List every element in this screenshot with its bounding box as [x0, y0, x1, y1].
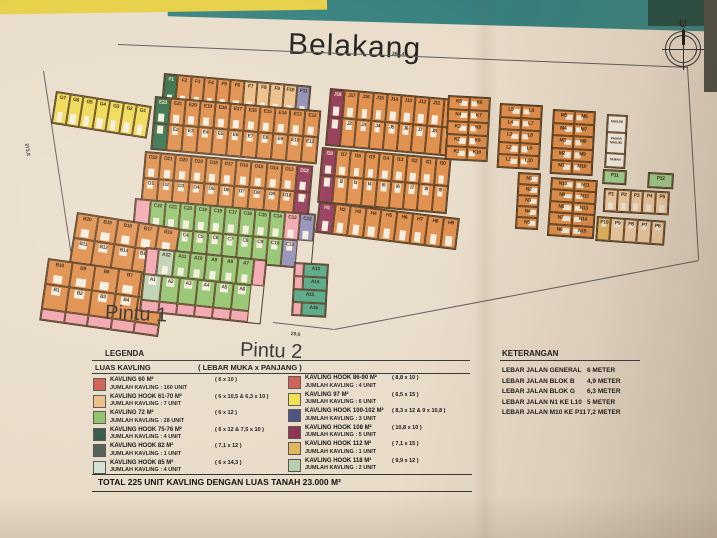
plot-e11: E11 — [301, 136, 318, 163]
total-units-text: TOTAL 225 UNIT KAVLING DENGAN LUAS TANAH… — [98, 477, 341, 487]
legend-swatch — [93, 461, 106, 474]
legend-item: KAVLING HOOK 108 M²JUMLAH KAVLING : 5 UN… — [288, 425, 478, 441]
plot-l5: L5 — [500, 104, 521, 118]
plot-k4: K4 — [448, 109, 469, 123]
legend-swatch — [93, 444, 106, 457]
keterangan-label: LEBAR JALAN BLOK G — [502, 388, 575, 395]
legend-item: KAVLING HOOK 82 M²JUMLAH KAVLING : 1 UNI… — [93, 443, 283, 459]
legend-item-count: JUMLAH KAVLING : 1 UNIT — [110, 451, 181, 457]
plot-l3: L3 — [499, 129, 520, 143]
plot-stub — [194, 305, 213, 318]
block-g: G7G6G5G4G3G2G1 — [51, 91, 151, 139]
legend-item-dimensions: ( 10,8 x 10 ) — [392, 425, 422, 431]
plot-k8: K8 — [467, 122, 488, 136]
legend-item-count: JUMLAH KAVLING : 160 UNIT — [110, 385, 187, 391]
facility-strip: MASJIDPASAR MASJIDTAMAN — [604, 114, 628, 169]
legend-swatch — [288, 409, 301, 422]
block-j: J18J17J16J15J14J13J12J11J10J1J2J3J4J5J6J… — [325, 88, 459, 157]
total-rule-bottom — [92, 491, 472, 492]
plot-p1: P1 — [604, 189, 618, 212]
plot-e12: E12 — [303, 110, 320, 137]
legend-item-count: JUMLAH KAVLING : 5 UNIT — [305, 432, 376, 438]
keterangan-value: 5 METER — [587, 399, 615, 406]
keterangan-value: 6,3 METER — [587, 388, 621, 395]
plot-m3: M3 — [552, 135, 573, 149]
plot-m8: M8 — [572, 136, 593, 150]
block-m: M5M6M4M7M3M8M2M9M1M10 — [550, 109, 596, 176]
plot-stub — [252, 259, 267, 286]
plot-p3: P3 — [629, 190, 643, 213]
block-p-lower: P10P9P8P7P6 — [595, 216, 666, 246]
legend-item-name: KAVLING HOOK 61-70 M² — [110, 394, 182, 400]
plot-p11: P11 — [603, 170, 626, 184]
block-p-upper: P1P2P3P4P5 — [603, 188, 670, 215]
legend-item-count: JUMLAH KAVLING : 28 UNIT — [110, 418, 184, 424]
legend-size-header: ( LEBAR MUKA x PANJANG ) — [198, 363, 302, 372]
legend-swatch — [93, 411, 106, 424]
keterangan-value: 4,9 METER — [587, 378, 621, 385]
compass-icon — [665, 31, 701, 67]
plot-a14: A14 — [303, 277, 328, 291]
keterangan-row: LEBAR JALAN BLOK G6,3 METER — [502, 388, 677, 398]
legend-item: KAVLING HOOK 85 M²JUMLAH KAVLING : 4 UNI… — [93, 460, 283, 476]
legend-swatch — [288, 459, 301, 472]
keterangan-label: LEBAR JALAN GENERAL — [502, 367, 581, 374]
keterangan-label: LEBAR JALAN M10 KE P11 — [502, 409, 586, 416]
plot-m2: M2 — [551, 148, 572, 162]
plot-p6: P6 — [650, 221, 665, 245]
plot-p11: P11 — [602, 169, 627, 185]
plot-l2: L2 — [498, 142, 519, 156]
legend-item-count: JUMLAH KAVLING : 4 UNIT — [110, 434, 181, 440]
plot-n5: N5 — [516, 217, 538, 229]
block-n-column: N1N2N3N4N5 — [515, 172, 541, 230]
legend-item-count: JUMLAH KAVLING : 1 UNIT — [305, 449, 376, 455]
legend-item-name: KAVLING 60 M² — [110, 377, 154, 383]
plot-h9: H9 — [440, 217, 459, 249]
siteplan-photo: Belakang U 360,4 273,8 76,3 29,6 G7G6G5G… — [0, 0, 717, 538]
legend-item-name: KAVLING HOOK 118 M² — [305, 458, 371, 464]
legend-title: LEGENDA — [105, 349, 144, 358]
legend-swatch — [93, 395, 106, 408]
legend-item: KAVLING HOOK 118 M²JUMLAH KAVLING : 2 UN… — [288, 458, 478, 474]
legend-item-name: KAVLING 97 M² — [305, 392, 349, 398]
legend-item-dimensions: ( 6 x 14,3 ) — [215, 460, 242, 466]
plot-l10: L10 — [518, 155, 539, 169]
plot-a13: A13 — [303, 264, 328, 278]
legend-item-dimensions: ( 6 x 12 & 7,5 x 10 ) — [215, 427, 264, 433]
keterangan-row: LEBAR JALAN GENERAL6 METER — [502, 367, 677, 377]
legend-item-name: KAVLING HOOK 85 M² — [110, 460, 173, 466]
block-l: L5L6L4L7L3L8L2L9L1L10 — [497, 103, 543, 170]
plot-k7: K7 — [468, 110, 489, 124]
keterangan-row: LEBAR JALAN N1 KE L105 METER — [502, 399, 677, 409]
plot-p5: P5 — [655, 192, 669, 215]
plot-k5: K5 — [448, 96, 469, 110]
legend-item: KAVLING 60 M²JUMLAH KAVLING : 160 UNIT( … — [93, 377, 283, 393]
plot-m1: M1 — [551, 160, 572, 174]
block-a-column: A13A14A15A16 — [291, 262, 329, 318]
plot-l8: L8 — [519, 130, 540, 144]
legend-rule-top — [92, 360, 470, 361]
legend-item-count: JUMLAH KAVLING : 3 UNIT — [305, 416, 376, 422]
legend-item-name: KAVLING HOOK 112 M² — [305, 441, 371, 447]
plot-i9: I9 — [431, 185, 447, 213]
legend-item-count: JUMLAH KAVLING : 2 UNIT — [305, 465, 376, 471]
plot-l7: L7 — [520, 118, 541, 132]
plot-l9: L9 — [519, 143, 540, 157]
plot-p12: P12 — [648, 173, 673, 188]
legend-item-dimensions: ( 7,1 x 15 ) — [392, 441, 419, 447]
legend-item-dimensions: ( 9,9 x 12 ) — [392, 458, 419, 464]
keterangan-rule — [500, 360, 640, 361]
plot-stub — [176, 304, 195, 317]
legend-item-name: KAVLING HOOK 75-76 M² — [110, 427, 182, 433]
keterangan-label: LEBAR JALAN BLOK B — [502, 378, 575, 385]
legend-item: KAVLING HOOK 61-70 M²JUMLAH KAVLING : 7 … — [93, 394, 283, 410]
legend-item-dimensions: ( 8,8 x 10 ) — [392, 375, 419, 381]
plot-l6: L6 — [521, 105, 542, 119]
plot-c12: C12 — [298, 213, 315, 241]
legend-item-count: JUMLAH KAVLING : 7 UNIT — [110, 401, 181, 407]
keterangan-title: KETERANGAN — [502, 349, 558, 358]
legend-item-name: KAVLING HOOK 100-102 M² — [305, 408, 384, 414]
legend-item: KAVLING 72 M²JUMLAH KAVLING : 28 UNIT( 6… — [93, 410, 283, 426]
legend-item: KAVLING HOOK 112 M²JUMLAH KAVLING : 1 UN… — [288, 441, 478, 457]
plot-i10: I10 — [434, 158, 450, 186]
plot-m5: M5 — [553, 110, 574, 124]
legend-item-name: KAVLING HOOK 82 M² — [110, 443, 173, 449]
legend-item-count: JUMLAH KAVLING : 4 UNIT — [305, 383, 376, 389]
legend-swatch — [288, 393, 301, 406]
plot-n6: N6 — [548, 224, 571, 237]
plot-m10: M10 — [571, 161, 592, 175]
legend-swatch — [93, 428, 106, 441]
plot-m6: M6 — [574, 111, 595, 125]
plot-k6: K6 — [469, 97, 490, 111]
legend-item-name: KAVLING 72 M² — [110, 410, 154, 416]
legend-item-name: KAVLING HOOK 86-90 M² — [305, 375, 377, 381]
legend-item-count: JUMLAH KAVLING : 6 UNIT — [305, 399, 376, 405]
keterangan-value: 7,2 METER — [587, 409, 621, 416]
plot-a6: A6 — [231, 283, 252, 311]
plot-pasar masjid: PASAR MASJID — [606, 132, 626, 154]
block-n: N10N11N9N12N8N13N7N14N6N15 — [547, 177, 598, 239]
plot-m4: M4 — [553, 123, 574, 137]
legend-item-dimensions: ( 6 x 10 ) — [215, 377, 237, 383]
plot-p12: P12 — [647, 172, 674, 189]
compass: U — [662, 18, 704, 67]
legend-item: KAVLING 97 M²JUMLAH KAVLING : 6 UNIT( 6,… — [288, 392, 478, 408]
legend-item-dimensions: ( 7,1 x 12 ) — [215, 443, 242, 449]
plot-l4: L4 — [500, 117, 521, 131]
gate-label-pintu1: Pintu 1 — [104, 301, 167, 327]
keterangan-row: LEBAR JALAN M10 KE P117,2 METER — [502, 409, 677, 419]
plot-masjid: MASJID — [607, 115, 627, 133]
legend-swatch — [93, 378, 106, 391]
legend-item-count: JUMLAH KAVLING : 4 UNIT — [110, 467, 181, 473]
plot-l1: L1 — [498, 154, 519, 168]
legend-item: KAVLING HOOK 75-76 M²JUMLAH KAVLING : 4 … — [93, 427, 283, 443]
compass-needle — [682, 30, 685, 45]
keterangan-label: LEBAR JALAN N1 KE L10 — [502, 399, 582, 406]
legend-column-header: LUAS KAVLING — [95, 363, 151, 372]
block-k: K5K6K4K7K3K8K2K9K1K10 — [445, 95, 491, 162]
legend-item-name: KAVLING HOOK 108 M² — [305, 425, 372, 431]
keterangan-value: 6 METER — [587, 367, 615, 374]
plot-p2: P2 — [617, 190, 631, 213]
plot-k1: K1 — [446, 146, 467, 160]
plot-k2: K2 — [446, 134, 467, 148]
plot-p4: P4 — [642, 191, 656, 214]
plot-k3: K3 — [447, 121, 468, 135]
plot-stub — [230, 309, 249, 322]
plot-k9: K9 — [467, 135, 488, 149]
legend-item: KAVLING HOOK 86-90 M²JUMLAH KAVLING : 4 … — [288, 375, 478, 391]
plot-d12: D12 — [295, 165, 312, 192]
legend-swatch — [288, 442, 301, 455]
legend-item-dimensions: ( 8,3 x 12 & 9 x 10,8 ) — [392, 408, 446, 414]
plot-stub — [40, 309, 65, 323]
legend-rule-bottom — [92, 373, 470, 374]
legend-item-dimensions: ( 6 x 12 ) — [215, 410, 237, 416]
plot-a16: A16 — [301, 302, 326, 316]
plot-m9: M9 — [572, 149, 593, 163]
keterangan-row: LEBAR JALAN BLOK B4,9 METER — [502, 378, 677, 388]
plot-stub — [212, 307, 231, 320]
legend-swatch — [288, 376, 301, 389]
legend-item-dimensions: ( 6 x 10,5 & 6,3 x 10 ) — [215, 394, 269, 400]
plot-m7: M7 — [573, 124, 594, 138]
legend-item-dimensions: ( 6,5 x 15 ) — [392, 392, 419, 398]
legend-item: KAVLING HOOK 100-102 M²JUMLAH KAVLING : … — [288, 408, 478, 424]
plot-taman: TAMAN — [605, 153, 625, 168]
legend-swatch — [288, 426, 301, 439]
plot-stub — [64, 312, 89, 326]
photo-edge — [704, 0, 717, 92]
plot-k10: K10 — [466, 147, 487, 161]
plot-n15: N15 — [570, 225, 593, 238]
